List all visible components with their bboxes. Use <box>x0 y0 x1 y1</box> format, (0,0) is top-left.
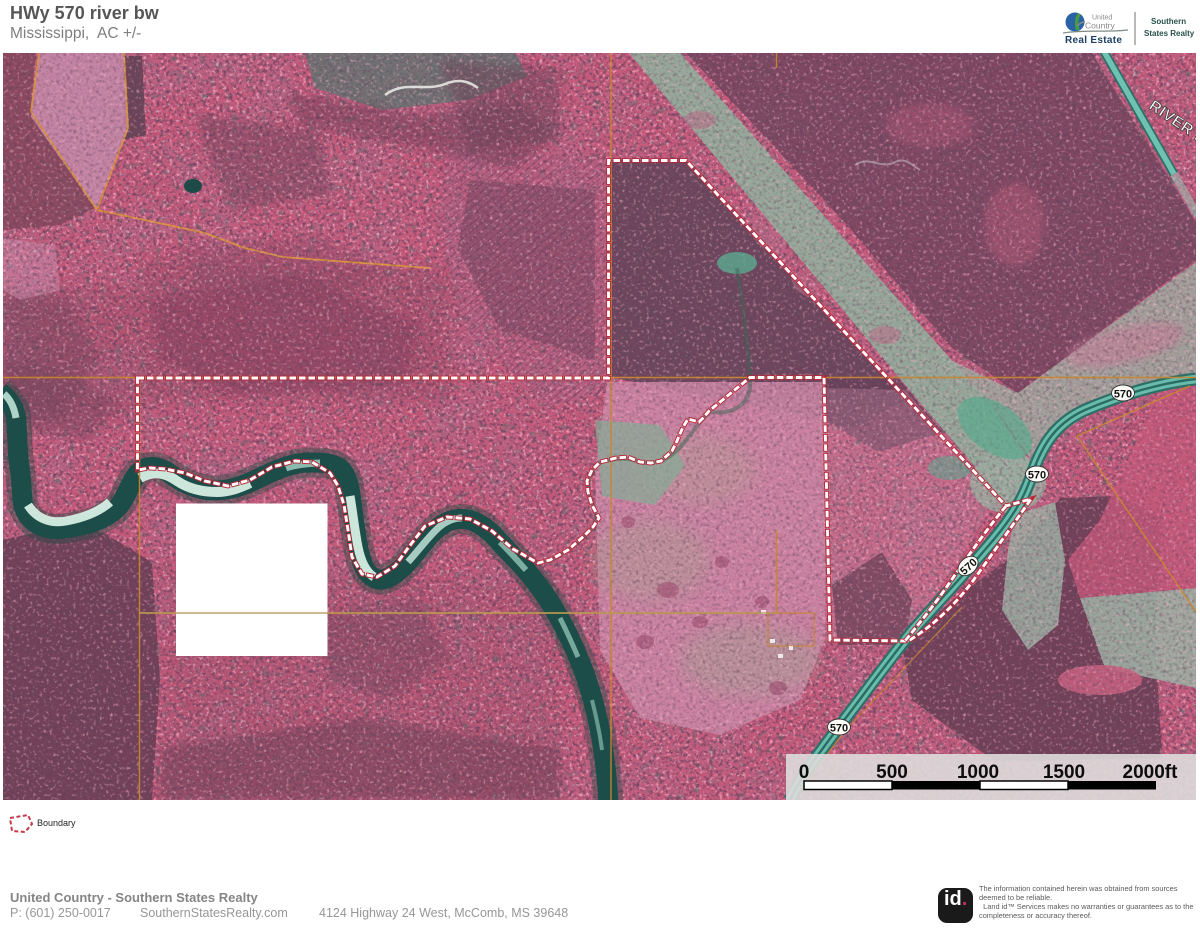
svg-text:1000: 1000 <box>957 762 999 783</box>
svg-text:Southern: Southern <box>1151 17 1186 26</box>
svg-text:570: 570 <box>1028 470 1046 482</box>
svg-text:2000ft: 2000ft <box>1123 762 1179 783</box>
svg-text:570: 570 <box>830 723 848 735</box>
svg-text:Country: Country <box>1085 21 1116 31</box>
svg-text:500: 500 <box>876 762 908 783</box>
svg-text:0: 0 <box>799 762 810 783</box>
svg-text:Real Estate: Real Estate <box>1065 35 1122 46</box>
svg-text:1500: 1500 <box>1043 762 1085 783</box>
svg-text:States Realty: States Realty <box>1144 29 1195 38</box>
svg-text:570: 570 <box>1114 389 1132 401</box>
